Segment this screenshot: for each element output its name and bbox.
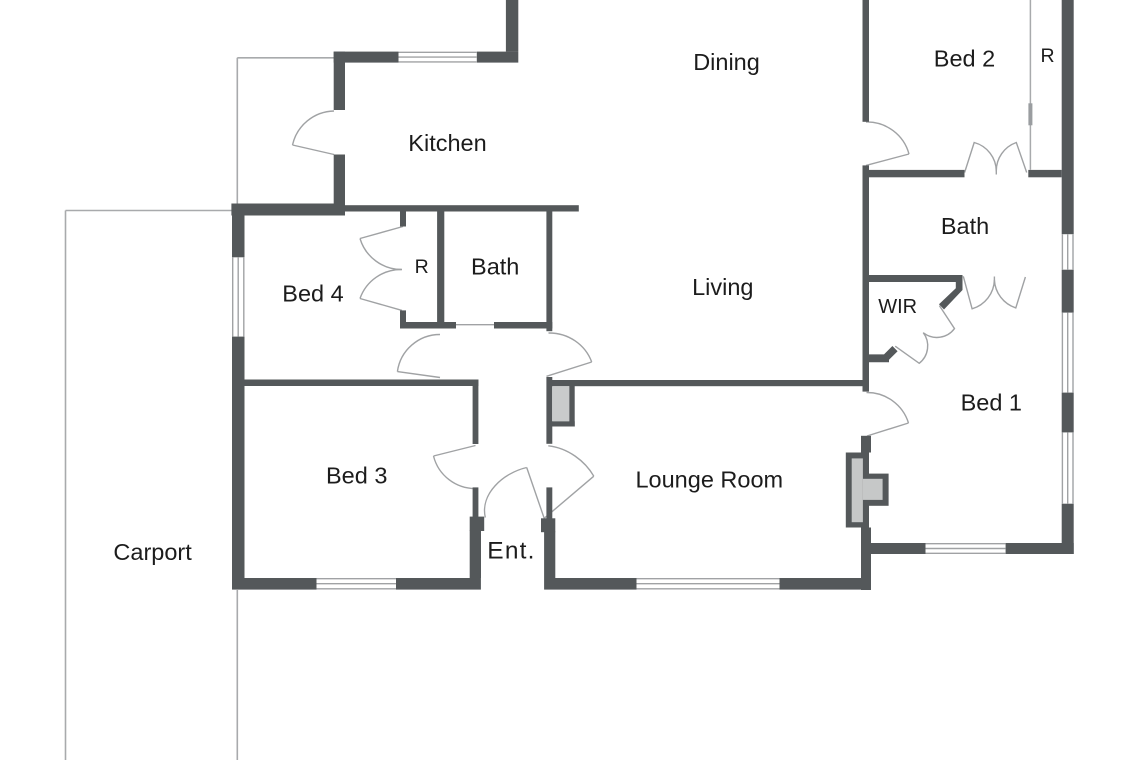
svg-text:Lounge Room: Lounge Room <box>635 467 783 493</box>
svg-text:WIR: WIR <box>878 296 917 318</box>
svg-text:Bed 4: Bed 4 <box>282 281 343 307</box>
svg-text:Bath: Bath <box>471 254 519 280</box>
svg-text:Bed 2: Bed 2 <box>934 46 995 72</box>
svg-text:Living: Living <box>692 274 753 300</box>
svg-text:Bath: Bath <box>941 213 989 239</box>
svg-text:Bed 3: Bed 3 <box>326 463 387 489</box>
svg-text:Ent.: Ent. <box>487 538 535 565</box>
svg-text:Bed 1: Bed 1 <box>961 390 1022 416</box>
svg-text:Dining: Dining <box>693 49 760 75</box>
svg-text:Carport: Carport <box>113 539 192 565</box>
svg-text:Kitchen: Kitchen <box>408 130 486 156</box>
svg-text:R: R <box>415 256 429 278</box>
svg-text:R: R <box>1040 45 1054 67</box>
